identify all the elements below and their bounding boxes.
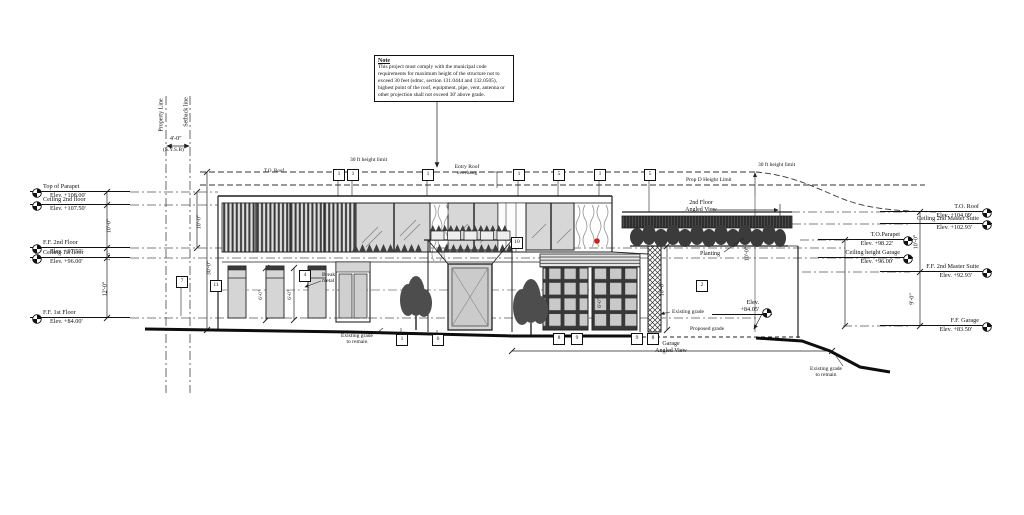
dim-6-window-2: 6'-0": [288, 290, 294, 300]
callout-tag: 1: [422, 169, 434, 181]
marker-ceiling-2nd-floor: Ceiling 2nd floor Elev. +107.50': [30, 196, 130, 212]
break-metal-label: Break metal: [322, 272, 335, 285]
marker-elev: Elev. +92.93': [880, 272, 992, 279]
marker-label: F.F. 2nd Floor: [30, 239, 130, 248]
second-floor-line2: Angled View: [678, 207, 724, 214]
window-1f-2: [266, 266, 284, 318]
existing-grade-remain-right-label: Existing grade to remain: [804, 366, 848, 379]
callout-tag: 6: [432, 334, 444, 346]
marker-label: Elev.: [712, 299, 772, 306]
callout-tag: 1: [396, 334, 408, 346]
callout-tag: 1: [333, 169, 345, 181]
entry-roof-line2: overhang: [446, 170, 488, 176]
marker-elev: Elev. +102.93': [880, 224, 992, 231]
garage: [540, 246, 661, 332]
callout-tag: 7: [176, 276, 188, 288]
dim-10-left-upper: 10'-0": [106, 219, 113, 234]
elevation-drawing: Note This project must comply with the m…: [0, 0, 1024, 515]
to-roof-small-label: T.O. Roof: [264, 169, 284, 175]
marker-ceiling-garage: Ceiling height Garage Elev. +96.00': [818, 249, 913, 265]
dim-10-garage-wall: 10'-0": [659, 282, 666, 297]
dim-6-window-1: 6'-0": [259, 290, 265, 300]
callout-tag: 5: [553, 169, 565, 181]
garage-slat-band: [540, 254, 640, 267]
marker-elev: Elev. +98.22': [818, 240, 913, 247]
marker-label: Ceiling 2nd Master Suite: [880, 215, 992, 224]
existing-grade-remain-left-label: Existing grade to remain: [334, 333, 380, 346]
dim-30-overall: 30'-0": [206, 261, 213, 276]
elevation-target-icon: [32, 254, 42, 264]
marker-existing-grade-elev: Elev. +84.05': [712, 299, 772, 315]
elevation-target-icon: [982, 268, 992, 278]
existing-grade-label: Existing grade: [672, 309, 704, 315]
marker-ff-1st-floor: F.F. 1st Floor Elev. +84.00': [30, 309, 130, 325]
break-metal-line2: metal: [322, 278, 335, 284]
marker-label: T.O. Roof: [880, 203, 992, 212]
setback-dim: 4'-0": [170, 136, 182, 143]
elevation-target-icon: [32, 201, 42, 211]
elevation-target-icon: [762, 308, 772, 318]
marker-elev: Elev. +96.00': [30, 258, 130, 265]
callout-tag: 8: [647, 333, 659, 345]
marker-ceiling-1st-floor: Ceiling 1st floor Elev. +96.00': [30, 249, 130, 265]
marker-ceiling-2nd-master: Ceiling 2nd Master Suite Elev. +102.93': [880, 215, 992, 231]
marker-ff-garage: F.F. Garage Elev. +83.50': [880, 317, 992, 333]
dim-10-angled: 10'-0": [744, 247, 751, 262]
property-line-label: Property Line: [158, 98, 165, 131]
dim-12-left-lower: 12'-0": [102, 282, 109, 297]
height-limit-left-label: 30 ft height limit: [350, 157, 387, 163]
egr-right-line2: to remain: [804, 372, 848, 378]
marker-label: Ceiling 1st floor: [30, 249, 130, 258]
second-floor-angled-label: 2nd Floor Angled View: [678, 200, 724, 214]
marker-ff-2nd-master: F.F. 2nd Master Suite Elev. +92.93': [880, 263, 992, 279]
height-limit-right-label: 30 ft height limit: [758, 162, 795, 168]
elevation-target-icon: [32, 314, 42, 324]
grade-lines: [145, 314, 890, 372]
code-note-box: Note This project must comply with the m…: [374, 55, 514, 102]
callout-tag: 4: [299, 270, 311, 282]
callout-tag: 2: [696, 280, 708, 292]
callout-tag: 1: [594, 169, 606, 181]
marker-label: F.F. Garage: [880, 317, 992, 326]
elevation-target-icon: [903, 236, 913, 246]
marker-elev: Elev. +107.50': [30, 205, 130, 212]
marker-label: Ceiling 2nd floor: [30, 196, 130, 205]
second-floor-line1: 2nd Floor: [678, 200, 724, 207]
note-body: This project must comply with the munici…: [378, 64, 510, 99]
dim-10-inner-left: 10'-0": [196, 215, 203, 230]
window-1f-1: [228, 266, 246, 318]
window-2f-right: [526, 203, 574, 250]
red-dot-marker: [594, 238, 600, 244]
proposed-grade-label: Proposed grade: [690, 326, 724, 332]
elevation-target-icon: [982, 322, 992, 332]
callout-tag: 11: [210, 280, 222, 292]
garage-door-left: [543, 268, 588, 330]
marker-label: Ceiling height Garage: [818, 249, 913, 258]
setback-line-label: Setback line: [183, 97, 190, 127]
marker-elev: Elev. +83.50': [880, 326, 992, 333]
setback-tag: (S.Y.S.B): [163, 147, 184, 153]
egr-left-line2: to remain: [334, 339, 380, 345]
callout-tag: 9: [571, 333, 583, 345]
callout-tag: 5: [644, 169, 656, 181]
callout-tag: 10: [511, 237, 523, 249]
prop-d-limit-label: Prop D Height Limit: [686, 177, 732, 183]
callout-tag: 8: [553, 333, 565, 345]
elevation-target-icon: [982, 220, 992, 230]
callout-tag: 9: [631, 333, 643, 345]
marker-label: F.F. 1st Floor: [30, 309, 130, 318]
dimension-ticks: [104, 169, 923, 354]
callout-tag: 1: [347, 169, 359, 181]
dim-10-right-upper: 10'-0": [913, 235, 920, 250]
callout-tag: 1: [513, 169, 525, 181]
marker-label: T.O.Parapet: [818, 231, 913, 240]
marker-to-parapet: T.O.Parapet Elev. +98.22': [818, 231, 913, 247]
louver-screen: [222, 203, 356, 252]
entry-roof-overhang-label: Entry Roof overhang: [446, 164, 488, 177]
dim-9-right-lower: 9'-0": [909, 293, 916, 305]
window-2f-entry: [448, 203, 498, 250]
marker-elev: Elev. +84.00': [30, 318, 130, 325]
dim-6-window-3: 6'-0": [598, 298, 604, 308]
garage-line2: Angled View: [648, 348, 694, 355]
planting-label: Planting: [700, 251, 720, 258]
marker-elev: Elev. +96.00': [818, 258, 913, 265]
window-2f-left: [356, 203, 430, 252]
elevation-target-icon: [903, 254, 913, 264]
marker-label: Top of Parapet: [30, 183, 130, 192]
